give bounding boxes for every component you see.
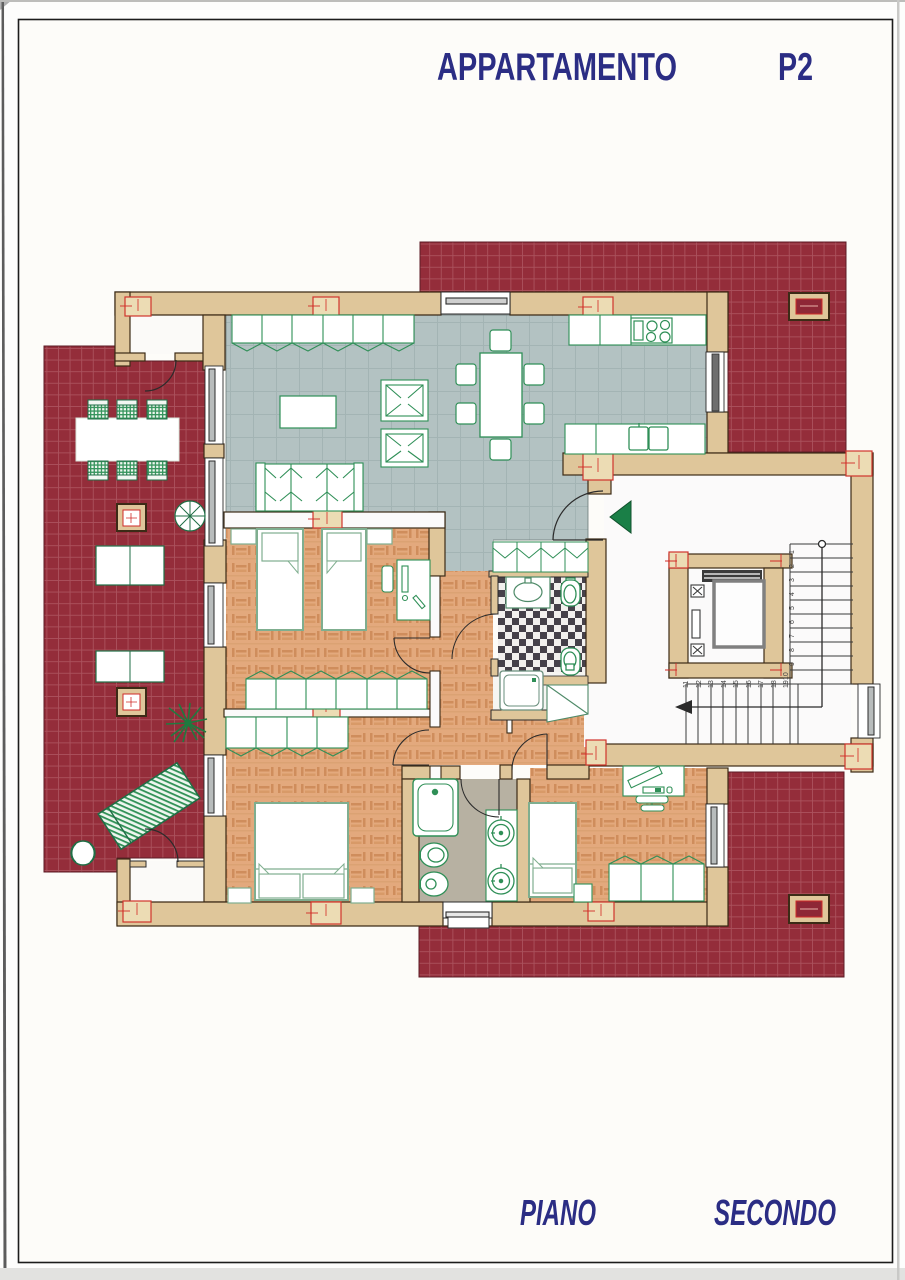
svg-text:19: 19 [783, 680, 790, 688]
svg-text:17: 17 [758, 680, 765, 688]
svg-text:SECONDO: SECONDO [714, 1192, 836, 1233]
svg-text:10: 10 [783, 672, 790, 680]
svg-text:8: 8 [789, 648, 796, 652]
svg-text:2: 2 [789, 564, 796, 568]
svg-text:9: 9 [789, 662, 796, 666]
svg-text:18: 18 [771, 680, 778, 688]
svg-text:1: 1 [789, 550, 796, 554]
svg-text:12: 12 [696, 680, 703, 688]
svg-text:PIANO: PIANO [520, 1192, 596, 1233]
svg-text:4: 4 [789, 592, 796, 596]
svg-text:P2: P2 [778, 46, 813, 89]
svg-text:5: 5 [789, 606, 796, 610]
svg-text:13: 13 [708, 680, 715, 688]
svg-text:11: 11 [683, 681, 690, 688]
svg-text:15: 15 [733, 680, 740, 688]
svg-text:6: 6 [789, 620, 796, 624]
svg-text:APPARTAMENTO: APPARTAMENTO [437, 46, 677, 89]
svg-text:7: 7 [789, 634, 796, 638]
svg-text:16: 16 [746, 680, 753, 688]
svg-text:14: 14 [721, 680, 728, 688]
svg-text:3: 3 [789, 578, 796, 582]
